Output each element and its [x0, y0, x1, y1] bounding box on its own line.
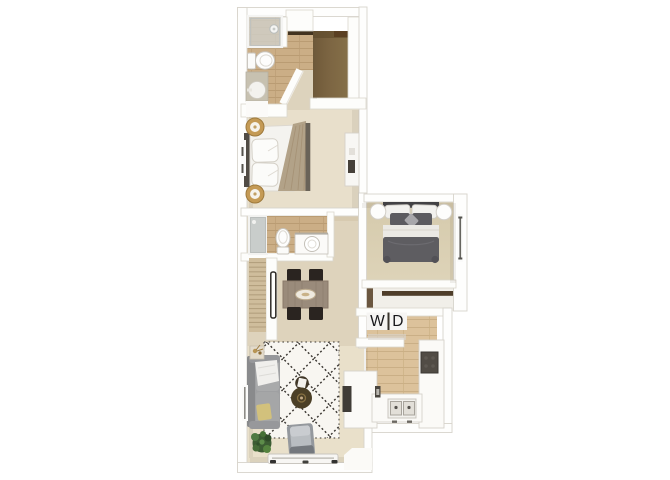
svg-text:W: W [370, 313, 385, 330]
svg-text:D: D [392, 313, 403, 330]
